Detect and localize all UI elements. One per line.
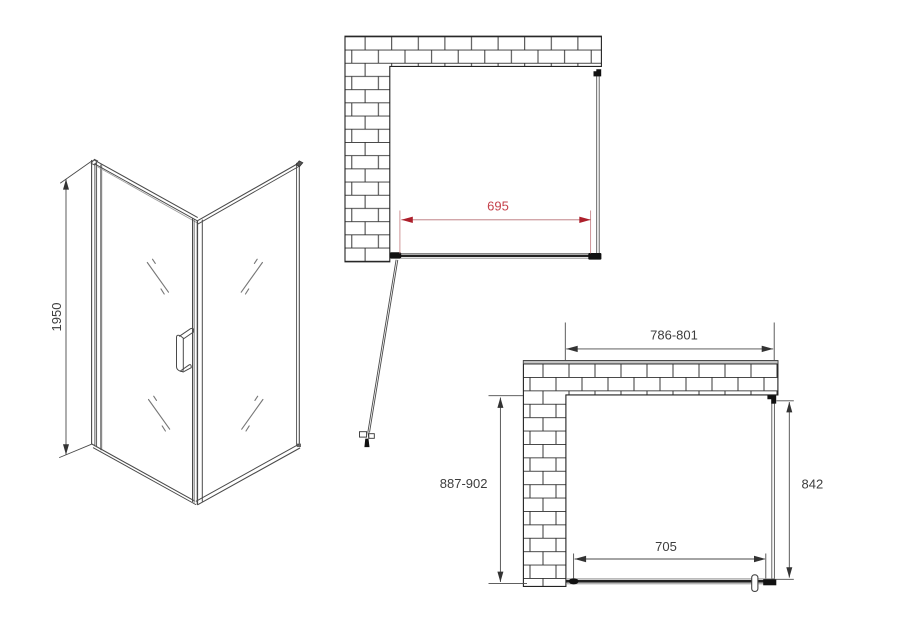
svg-text:786-801: 786-801 <box>650 328 698 343</box>
svg-text:695: 695 <box>487 198 509 213</box>
svg-text:887-902: 887-902 <box>440 476 488 491</box>
svg-text:1950: 1950 <box>49 303 64 332</box>
svg-text:842: 842 <box>802 477 824 492</box>
svg-text:705: 705 <box>655 539 677 554</box>
